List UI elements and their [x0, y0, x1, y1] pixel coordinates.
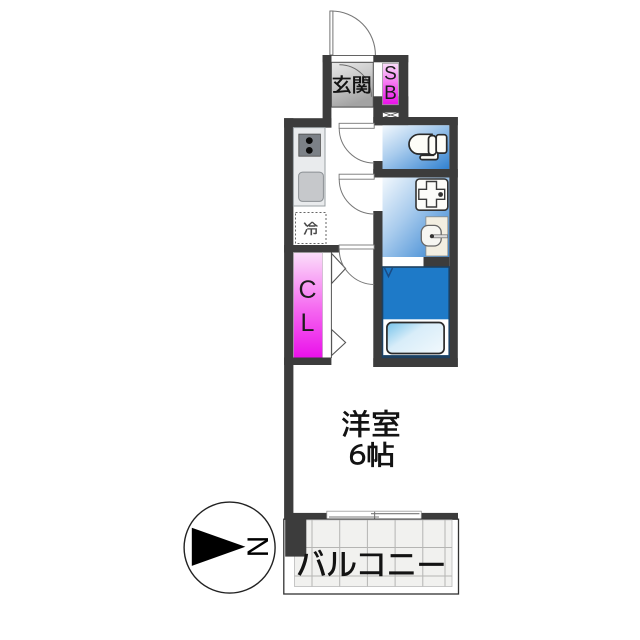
svg-text:S: S: [384, 63, 397, 84]
svg-text:L: L: [301, 309, 315, 337]
svg-text:B: B: [384, 83, 397, 104]
svg-text:N: N: [240, 536, 273, 558]
svg-text:C: C: [298, 276, 316, 304]
